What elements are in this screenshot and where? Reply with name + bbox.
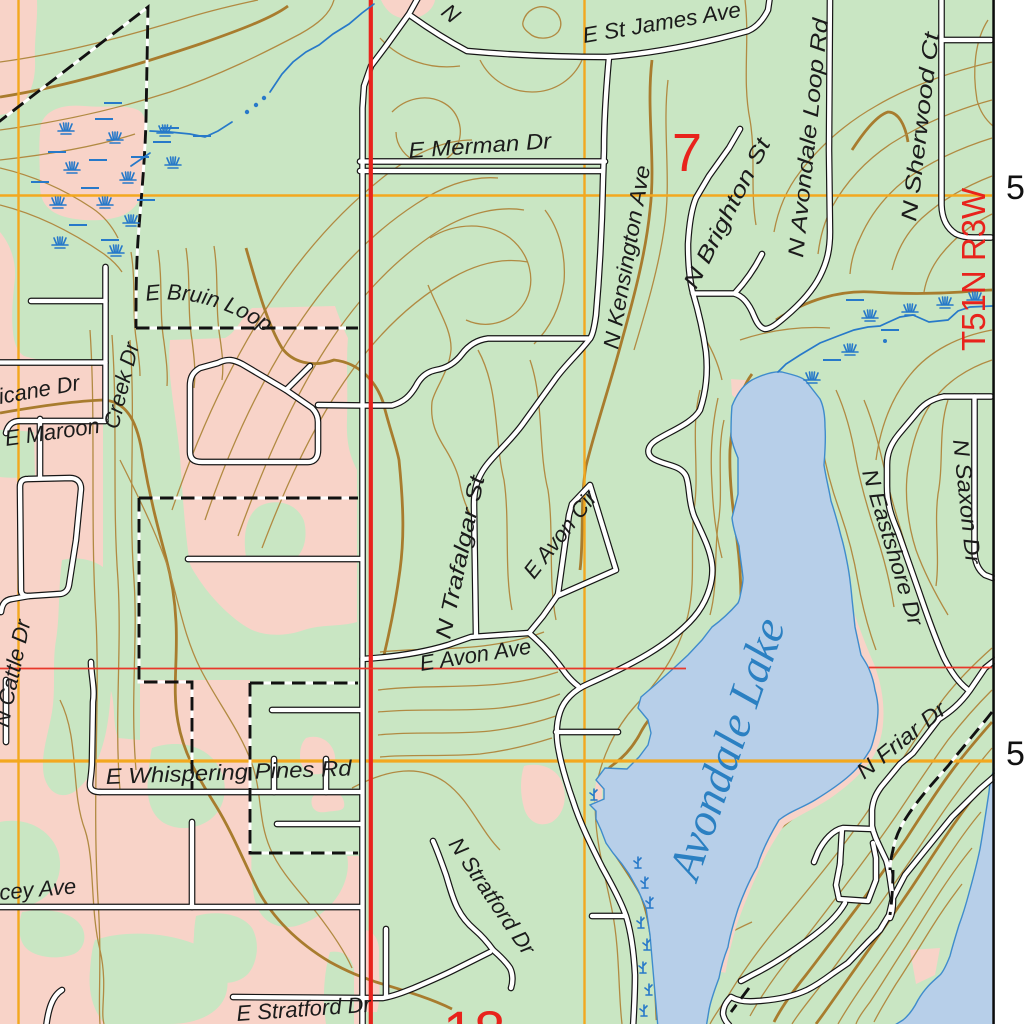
- svg-text:7: 7: [672, 123, 702, 183]
- svg-text:5: 5: [1006, 735, 1024, 773]
- svg-text:T51N R3W: T51N R3W: [955, 187, 992, 351]
- svg-text:18: 18: [443, 999, 505, 1024]
- svg-text:5: 5: [1006, 169, 1024, 207]
